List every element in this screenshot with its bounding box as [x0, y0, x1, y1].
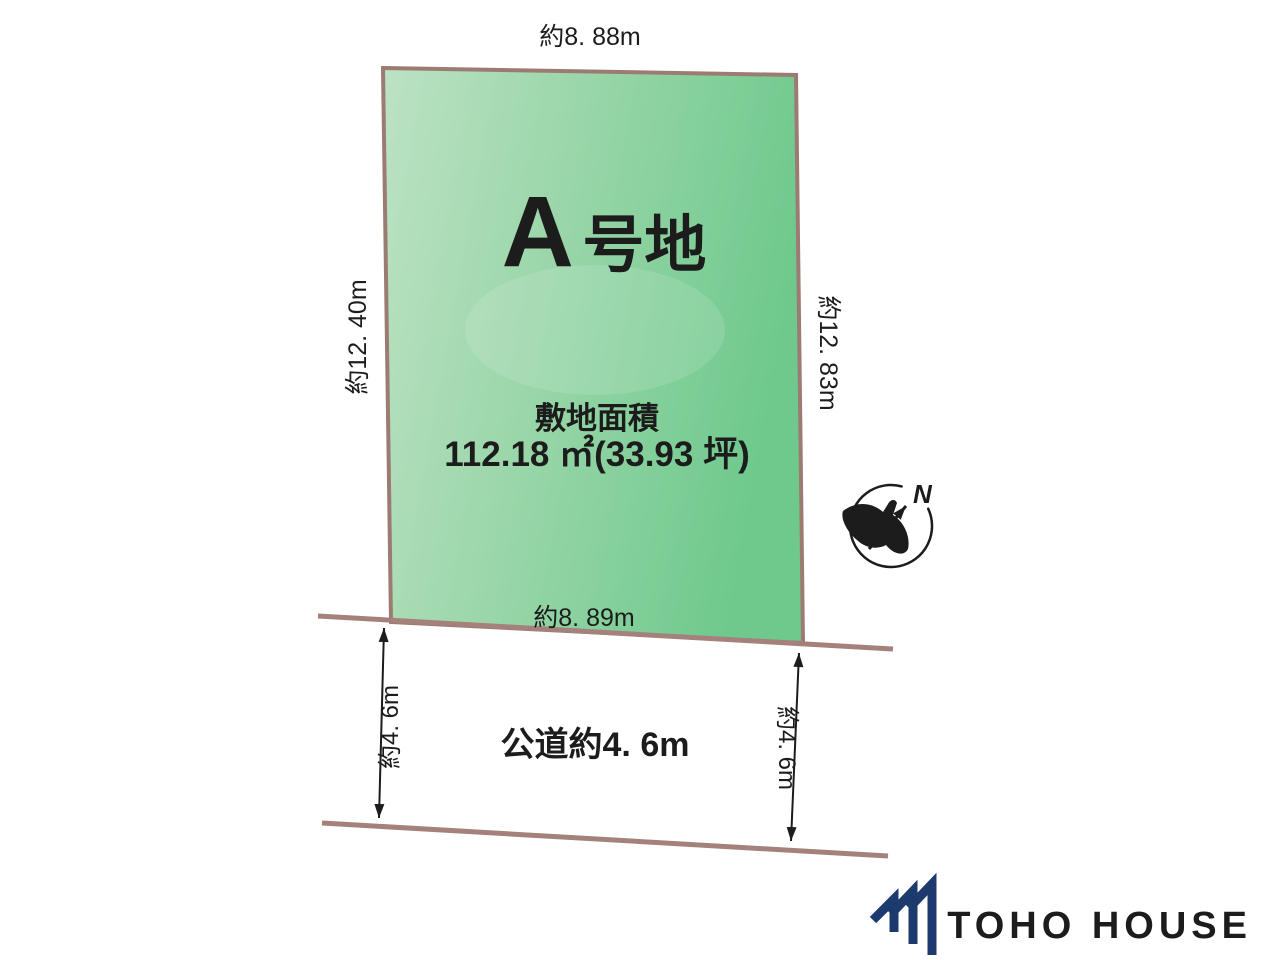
- north-label: N: [913, 479, 933, 509]
- land-plot-diagram: 約8. 88m 約12. 40m 約12. 83m 約8. 89m A 号地 敷…: [0, 0, 1280, 960]
- diagram-svg: 約8. 88m 約12. 40m 約12. 83m 約8. 89m A 号地 敷…: [0, 0, 1280, 960]
- area-title: 敷地面積: [535, 401, 659, 436]
- plot-name-suffix: 号地: [582, 211, 706, 280]
- footer-brand: TOHO HOUSE: [873, 884, 1252, 955]
- bird-silhouette-icon: [842, 500, 908, 554]
- toho-house-logo-icon: [873, 884, 932, 955]
- logo-stripe-1: [873, 899, 894, 932]
- dimension-left-label: 約12. 40m: [344, 279, 372, 394]
- dimension-top-label: 約8. 88m: [539, 23, 640, 51]
- road-edge-bottom: [322, 823, 888, 856]
- road-width-right-label: 約4. 6m: [773, 706, 800, 790]
- plot-name-letter: A: [502, 176, 574, 288]
- dimension-right-label: 約12. 83m: [814, 295, 842, 410]
- road-label: 公道約4. 6m: [501, 726, 690, 764]
- compass: N: [842, 479, 933, 567]
- brand-name: TOHO HOUSE: [947, 905, 1252, 947]
- dimension-bottom-label: 約8. 89m: [533, 604, 634, 632]
- road-width-left-label: 約4. 6m: [377, 685, 404, 769]
- area-value: 112.18 ㎡(33.93 坪): [444, 434, 749, 474]
